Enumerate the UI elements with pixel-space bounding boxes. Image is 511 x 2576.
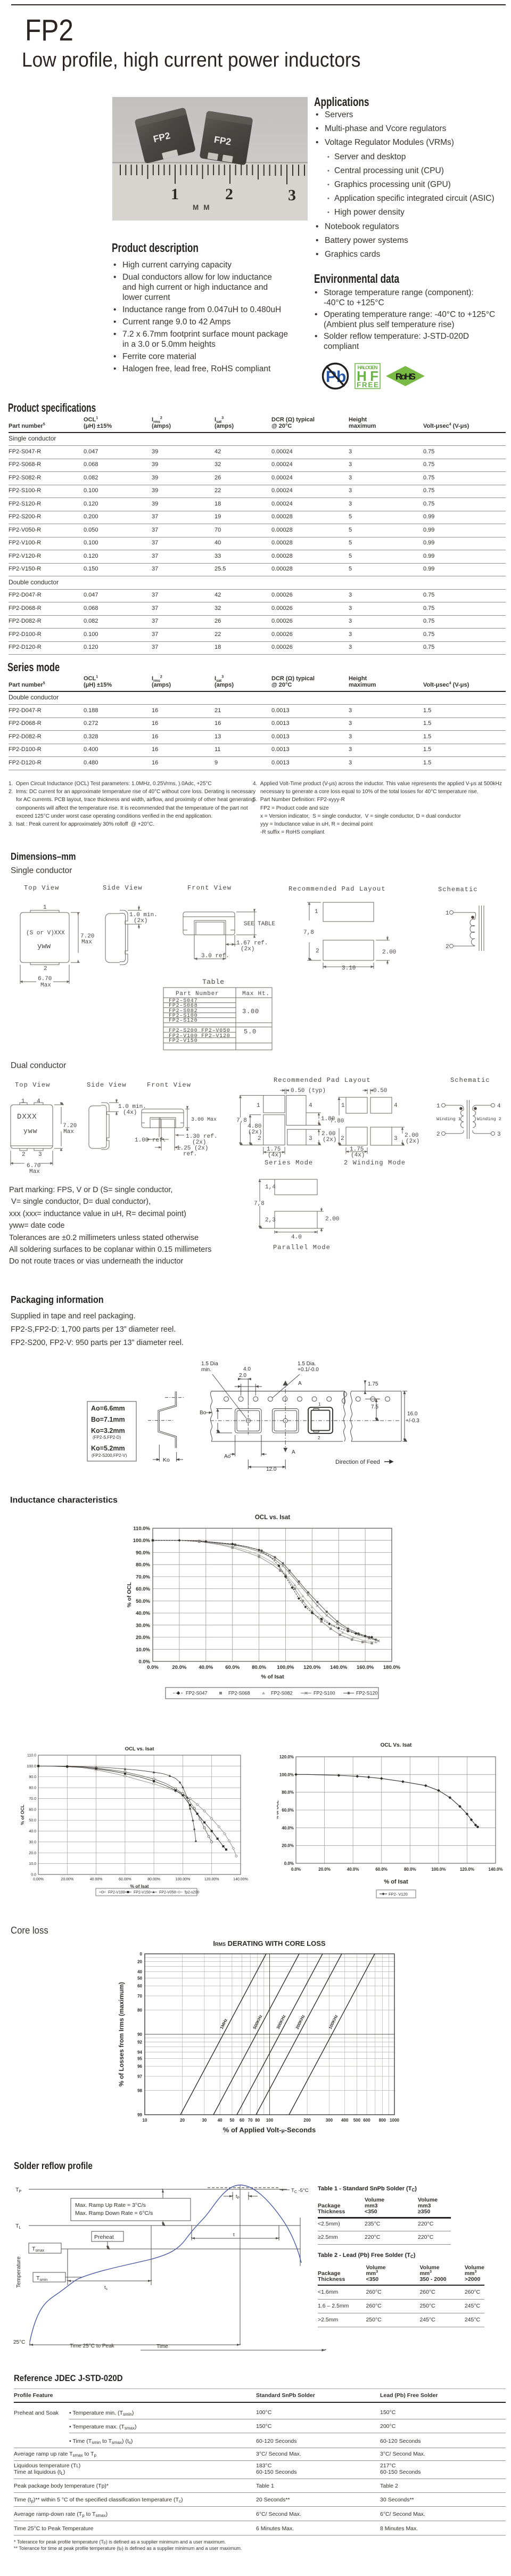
svg-text:100.0%: 100.0% — [431, 1867, 446, 1872]
svg-text:Ao: Ao — [224, 1454, 231, 1460]
svg-text:Temperature: Temperature — [15, 2256, 22, 2288]
svg-text:Max: Max — [29, 1169, 40, 1175]
svg-text:180.0%: 180.0% — [383, 1665, 401, 1670]
svg-text:min.: min. — [201, 1367, 211, 1373]
svg-text:0.50: 0.50 — [373, 1088, 387, 1094]
svg-text:FP2- V120: FP2- V120 — [389, 1892, 408, 1897]
svg-text:800: 800 — [379, 2118, 386, 2123]
svg-text:SEE: SEE — [244, 921, 254, 927]
svg-text:20.0: 20.0 — [29, 1852, 36, 1855]
svg-text:1: 1 — [436, 1103, 440, 1110]
svg-text:50: 50 — [229, 2118, 234, 2123]
svg-text:Series Mode: Series Mode — [265, 1159, 313, 1167]
svg-text:+0.1/-0.0: +0.1/-0.0 — [298, 1367, 319, 1373]
svg-text:3.00: 3.00 — [242, 1008, 259, 1015]
svg-text:Winding 1: Winding 1 — [436, 1116, 461, 1122]
svg-text:2: 2 — [318, 1436, 320, 1440]
svg-text:1: 1 — [318, 1402, 321, 1407]
svg-text:120.0%: 120.0% — [460, 1867, 474, 1872]
svg-text:% of Losses from Irms (maximum: % of Losses from Irms (maximum) — [118, 1982, 125, 2086]
svg-text:90.0: 90.0 — [29, 1775, 36, 1779]
svg-text:80: 80 — [137, 2008, 142, 2012]
svg-text:92: 92 — [137, 2040, 142, 2044]
svg-text:2.00: 2.00 — [325, 1216, 339, 1222]
svg-text:100.0%: 100.0% — [133, 1538, 151, 1544]
svg-text:97: 97 — [137, 2074, 142, 2079]
svg-text:0: 0 — [140, 1952, 143, 1957]
svg-text:7.80: 7.80 — [330, 1118, 344, 1124]
svg-text:80.0%: 80.0% — [282, 1790, 294, 1795]
svg-text:1000: 1000 — [390, 2118, 399, 2123]
svg-text:60.0%: 60.0% — [375, 1867, 388, 1872]
svg-text:t: t — [233, 2232, 235, 2238]
svg-text:4: 4 — [497, 1103, 501, 1110]
svg-text:OCL vs. Isat: OCL vs. Isat — [255, 1514, 290, 1521]
svg-text:Front View: Front View — [187, 884, 232, 892]
svg-text:TABLE: TABLE — [258, 921, 275, 927]
svg-text:(2x): (2x) — [406, 1138, 419, 1145]
svg-text:94: 94 — [137, 2050, 142, 2055]
svg-text:Ko=3.2mm: Ko=3.2mm — [91, 1427, 125, 1434]
svg-text:Max: Max — [81, 939, 92, 945]
svg-text:1: 1 — [446, 910, 449, 917]
svg-text:40.0: 40.0 — [29, 1830, 36, 1833]
svg-text:4: 4 — [309, 1103, 312, 1109]
svg-text:1.5 Dia: 1.5 Dia — [201, 1361, 218, 1367]
svg-text:0.0%: 0.0% — [284, 1861, 294, 1866]
svg-text:FP2–S120: FP2–S120 — [169, 1018, 197, 1024]
svg-text:yww: yww — [37, 942, 51, 951]
svg-text:Schematic: Schematic — [450, 1077, 490, 1084]
svg-text:12.0: 12.0 — [266, 1466, 277, 1472]
svg-text:(FP2-S,FP2-D): (FP2-S,FP2-D) — [93, 1435, 121, 1440]
svg-text:2.0: 2.0 — [239, 1373, 246, 1379]
svg-text:% of Isat: % of Isat — [384, 1879, 408, 1885]
svg-text:A: A — [292, 1449, 295, 1455]
svg-text:2.00: 2.00 — [382, 949, 396, 956]
svg-text:25°C: 25°C — [13, 2339, 25, 2345]
svg-text:98: 98 — [137, 2088, 142, 2093]
svg-text:300: 300 — [326, 2118, 333, 2123]
svg-text:200KHz: 200KHz — [295, 2014, 306, 2030]
svg-text:2: 2 — [225, 185, 233, 203]
svg-text:80.0%: 80.0% — [404, 1867, 416, 1872]
svg-text:10: 10 — [143, 2118, 147, 2123]
svg-text:5.0: 5.0 — [244, 1028, 257, 1036]
svg-text:fp2-s200: fp2-s200 — [185, 1891, 199, 1895]
svg-text:30.0%: 30.0% — [136, 1623, 150, 1628]
svg-text:100: 100 — [266, 2118, 274, 2123]
svg-text:3: 3 — [309, 1136, 312, 1142]
svg-text:DXXX: DXXX — [17, 1113, 37, 1121]
svg-text:4: 4 — [37, 1098, 40, 1105]
svg-text:Recommended Pad Layout: Recommended Pad Layout — [274, 1077, 371, 1084]
svg-text:1: 1 — [21, 1098, 25, 1105]
svg-text:Preheat: Preheat — [94, 2234, 114, 2240]
svg-text:99: 99 — [137, 2113, 142, 2117]
svg-text:2: 2 — [446, 944, 449, 950]
svg-text:FREE: FREE — [357, 381, 378, 389]
svg-text:FP2–V150: FP2–V150 — [169, 1038, 197, 1044]
svg-text:160.0%: 160.0% — [357, 1665, 374, 1670]
svg-text:20.0%: 20.0% — [172, 1665, 186, 1670]
svg-text:50: 50 — [137, 1976, 142, 1980]
svg-text:% of OCL: % of OCL — [277, 1800, 279, 1820]
svg-text:20.0%: 20.0% — [318, 1867, 331, 1872]
svg-text:7,8: 7,8 — [236, 1118, 247, 1124]
svg-text:Winding 2: Winding 2 — [477, 1116, 501, 1122]
svg-text:60.0: 60.0 — [29, 1808, 36, 1812]
svg-text:4.0: 4.0 — [243, 1366, 251, 1372]
svg-text:7,8: 7,8 — [254, 1201, 265, 1207]
svg-text:FP2-V100: FP2-V100 — [108, 1891, 125, 1895]
svg-text:10.0%: 10.0% — [136, 1647, 150, 1653]
svg-text:FP2-S082: FP2-S082 — [271, 1691, 293, 1696]
svg-text:140.00%: 140.00% — [233, 1878, 248, 1881]
svg-text:120.00%: 120.00% — [204, 1878, 219, 1881]
svg-text:7,8: 7,8 — [303, 930, 314, 936]
svg-text:10.0: 10.0 — [29, 1862, 36, 1866]
svg-text:Max. Ramp Up Rate = 3°C/s: Max. Ramp Up Rate = 3°C/s — [75, 2202, 146, 2208]
svg-text:70: 70 — [137, 1994, 142, 1999]
svg-text:Max: Max — [63, 1129, 74, 1135]
svg-text:Time 25°C to Peak: Time 25°C to Peak — [70, 2343, 115, 2349]
svg-text:80.0%: 80.0% — [136, 1562, 150, 1568]
svg-text:2: 2 — [22, 1152, 26, 1158]
svg-text:Ao=6.6mm: Ao=6.6mm — [91, 1405, 125, 1412]
svg-text:Parallel Mode: Parallel Mode — [273, 1244, 331, 1251]
svg-text:Max: Max — [40, 982, 51, 989]
svg-text:Table: Table — [202, 978, 225, 986]
svg-text:2: 2 — [316, 948, 319, 955]
svg-text:100.00%: 100.00% — [176, 1878, 191, 1881]
svg-text:50.0%: 50.0% — [136, 1599, 150, 1604]
svg-text:70: 70 — [248, 2118, 253, 2123]
svg-text:4: 4 — [394, 1103, 398, 1109]
svg-text:Part Number: Part Number — [176, 991, 219, 997]
svg-text:2: 2 — [258, 1136, 261, 1142]
svg-text:Side View: Side View — [103, 884, 143, 892]
svg-text:40.0%: 40.0% — [136, 1611, 150, 1617]
svg-text:Ko=5.2mm: Ko=5.2mm — [91, 1445, 125, 1452]
svg-text:80.00%: 80.00% — [147, 1878, 160, 1881]
svg-text:20: 20 — [137, 1959, 142, 1964]
svg-text:Top View: Top View — [15, 1081, 50, 1089]
svg-text:80: 80 — [255, 2118, 260, 2123]
svg-text:IRMS DERATING WITH CORE LOSS: IRMS DERATING WITH CORE LOSS — [213, 1939, 325, 1947]
svg-text:0.0%: 0.0% — [138, 1659, 150, 1665]
svg-text:70.0: 70.0 — [29, 1797, 36, 1801]
svg-text:20.0%: 20.0% — [282, 1844, 294, 1848]
svg-text:80.0: 80.0 — [29, 1787, 36, 1790]
svg-text:2: 2 — [44, 966, 47, 972]
svg-text:60.0%: 60.0% — [136, 1586, 150, 1592]
svg-text:A: A — [298, 1381, 302, 1387]
svg-text:(4x): (4x) — [268, 1152, 282, 1159]
svg-text:100.0%: 100.0% — [279, 1772, 294, 1777]
svg-text:ts: ts — [104, 2285, 108, 2291]
svg-text:0.0%: 0.0% — [147, 1665, 159, 1670]
svg-text:TP: TP — [15, 2187, 21, 2194]
svg-text:Time: Time — [156, 2344, 168, 2350]
svg-text:FP2-V050: FP2-V050 — [159, 1891, 176, 1895]
svg-text:(4x): (4x) — [351, 1152, 365, 1159]
svg-text:60: 60 — [137, 1984, 142, 1988]
svg-text:RoHS: RoHS — [395, 372, 416, 382]
svg-text:3: 3 — [38, 1152, 42, 1158]
svg-text:60: 60 — [240, 2118, 244, 2123]
svg-text:0.0%: 0.0% — [291, 1867, 301, 1872]
svg-text:1: 1 — [341, 1103, 345, 1109]
svg-text:Max. Ramp Down Rate = 6°C/s: Max. Ramp Down Rate = 6°C/s — [75, 2210, 153, 2216]
svg-text:FP2-V150: FP2-V150 — [134, 1891, 151, 1895]
svg-text:300KHz: 300KHz — [276, 2014, 287, 2030]
svg-text:Direction of Feed: Direction of Feed — [335, 1459, 380, 1465]
svg-text:ref.: ref. — [183, 1151, 197, 1157]
svg-text:% of OCL: % of OCL — [126, 1582, 133, 1608]
svg-text:FP2-S068: FP2-S068 — [228, 1691, 250, 1696]
svg-text:Front View: Front View — [147, 1081, 191, 1089]
svg-text:1.00 ref.: 1.00 ref. — [135, 1137, 166, 1144]
svg-text:2,3: 2,3 — [265, 1217, 276, 1224]
svg-text:3.0 ref.: 3.0 ref. — [201, 953, 229, 959]
svg-text:Ko: Ko — [163, 1457, 170, 1463]
svg-text:(2x): (2x) — [323, 1137, 336, 1143]
svg-text:Side View: Side View — [87, 1081, 127, 1089]
svg-text:0.50 (typ): 0.50 (typ) — [291, 1088, 326, 1094]
svg-text:% of Isat: % of Isat — [130, 1884, 149, 1889]
svg-text:50.0: 50.0 — [29, 1819, 36, 1823]
svg-text:20.00%: 20.00% — [61, 1878, 73, 1881]
svg-text:yww: yww — [23, 1127, 37, 1135]
svg-text:3: 3 — [497, 1131, 501, 1138]
svg-text:20.0%: 20.0% — [136, 1635, 150, 1641]
svg-text:40.0%: 40.0% — [199, 1665, 213, 1670]
svg-text:(S or V)XXX: (S or V)XXX — [26, 930, 65, 936]
svg-text:FP2-S100: FP2-S100 — [314, 1691, 335, 1696]
svg-text:TC -5°C: TC -5°C — [291, 2188, 309, 2194]
svg-text:140.0%: 140.0% — [330, 1665, 348, 1670]
svg-text:90.0%: 90.0% — [136, 1550, 150, 1556]
svg-text:2 Winding Mode: 2 Winding Mode — [344, 1159, 406, 1167]
svg-text:(2x): (2x) — [241, 946, 254, 952]
svg-text:60.00%: 60.00% — [119, 1878, 131, 1881]
svg-text:OCL Vs. Isat: OCL Vs. Isat — [381, 1742, 412, 1748]
svg-text:TL: TL — [15, 2223, 21, 2230]
svg-text:2: 2 — [341, 1136, 344, 1142]
svg-text:30: 30 — [202, 2118, 207, 2123]
svg-text:40.0%: 40.0% — [282, 1825, 294, 1830]
svg-text:200: 200 — [303, 2118, 311, 2123]
svg-text:100.0: 100.0 — [27, 1765, 36, 1768]
svg-text:Top View: Top View — [24, 884, 59, 892]
svg-text:100.0%: 100.0% — [277, 1665, 294, 1670]
svg-text:FP2-S047: FP2-S047 — [186, 1691, 208, 1696]
svg-text:6.70: 6.70 — [38, 976, 52, 982]
svg-text:60.0%: 60.0% — [282, 1808, 294, 1813]
svg-text:MM: MM — [193, 203, 215, 211]
svg-text:80.0%: 80.0% — [252, 1665, 266, 1670]
svg-text:4.0: 4.0 — [291, 1234, 302, 1241]
svg-text:% of OCL: % of OCL — [20, 1805, 25, 1825]
svg-text:400: 400 — [341, 2118, 349, 2123]
svg-text:Schematic: Schematic — [438, 886, 478, 893]
svg-text:0.0: 0.0 — [31, 1873, 36, 1877]
svg-text:7.5: 7.5 — [371, 1404, 378, 1410]
svg-text:96: 96 — [137, 2064, 142, 2069]
svg-text:30.0: 30.0 — [29, 1840, 36, 1844]
svg-text:(4x): (4x) — [123, 1110, 137, 1116]
svg-text:3: 3 — [394, 1136, 398, 1142]
svg-text:Bo=7.1mm: Bo=7.1mm — [91, 1416, 125, 1423]
svg-text:1: 1 — [43, 904, 47, 911]
svg-text:1,4: 1,4 — [265, 1184, 276, 1191]
svg-text:tP: tP — [236, 2194, 240, 2200]
svg-text:OCL vs. Isat: OCL vs. Isat — [125, 1746, 155, 1752]
svg-text:0.00%: 0.00% — [33, 1878, 44, 1881]
svg-text:Bo: Bo — [200, 1410, 207, 1416]
svg-text:40: 40 — [137, 1969, 142, 1974]
svg-text:500: 500 — [353, 2118, 361, 2123]
svg-text:1: 1 — [315, 909, 318, 915]
svg-text:1: 1 — [171, 185, 179, 203]
svg-text:120.0%: 120.0% — [279, 1755, 294, 1759]
svg-text:20: 20 — [180, 2118, 185, 2123]
svg-text:Max Ht.: Max Ht. — [242, 991, 270, 997]
svg-text:2: 2 — [436, 1131, 440, 1138]
svg-text:3.00 Max: 3.00 Max — [191, 1117, 217, 1123]
svg-text:1.5 Dia.: 1.5 Dia. — [298, 1361, 316, 1367]
svg-text:Recommended Pad Layout: Recommended Pad Layout — [289, 885, 386, 893]
svg-text:110.0: 110.0 — [27, 1754, 36, 1758]
svg-text:% of Applied Volt-μ-Seconds: % of Applied Volt-μ-Seconds — [223, 2126, 316, 2134]
svg-text:40: 40 — [218, 2118, 222, 2123]
svg-text:3: 3 — [288, 186, 296, 204]
svg-text:40.00%: 40.00% — [90, 1878, 103, 1881]
svg-text:FP2-S120: FP2-S120 — [356, 1691, 378, 1696]
svg-text:+/-0.3: +/-0.3 — [406, 1418, 419, 1424]
svg-text:110.0%: 110.0% — [133, 1526, 150, 1532]
svg-text:60.0%: 60.0% — [225, 1665, 240, 1670]
svg-text:(FP2-S200,FP2-V): (FP2-S200,FP2-V) — [92, 1453, 127, 1458]
svg-text:600: 600 — [363, 2118, 370, 2123]
svg-text:16.0: 16.0 — [407, 1411, 418, 1417]
svg-text:1: 1 — [257, 1103, 260, 1109]
svg-text:100KHz: 100KHz — [328, 2014, 339, 2030]
svg-text:120.0%: 120.0% — [303, 1665, 321, 1670]
svg-text:70.0%: 70.0% — [136, 1574, 150, 1580]
svg-text:1.75: 1.75 — [368, 1381, 378, 1387]
svg-text:(2x): (2x) — [134, 918, 147, 924]
svg-text:3.10: 3.10 — [342, 965, 356, 972]
svg-text:(2x): (2x) — [248, 1129, 262, 1136]
svg-text:140.0%: 140.0% — [488, 1867, 502, 1872]
svg-text:% of Isat: % of Isat — [261, 1674, 284, 1680]
svg-text:95: 95 — [137, 2056, 142, 2061]
svg-text:40.0%: 40.0% — [347, 1867, 359, 1872]
svg-text:90: 90 — [137, 2032, 142, 2037]
